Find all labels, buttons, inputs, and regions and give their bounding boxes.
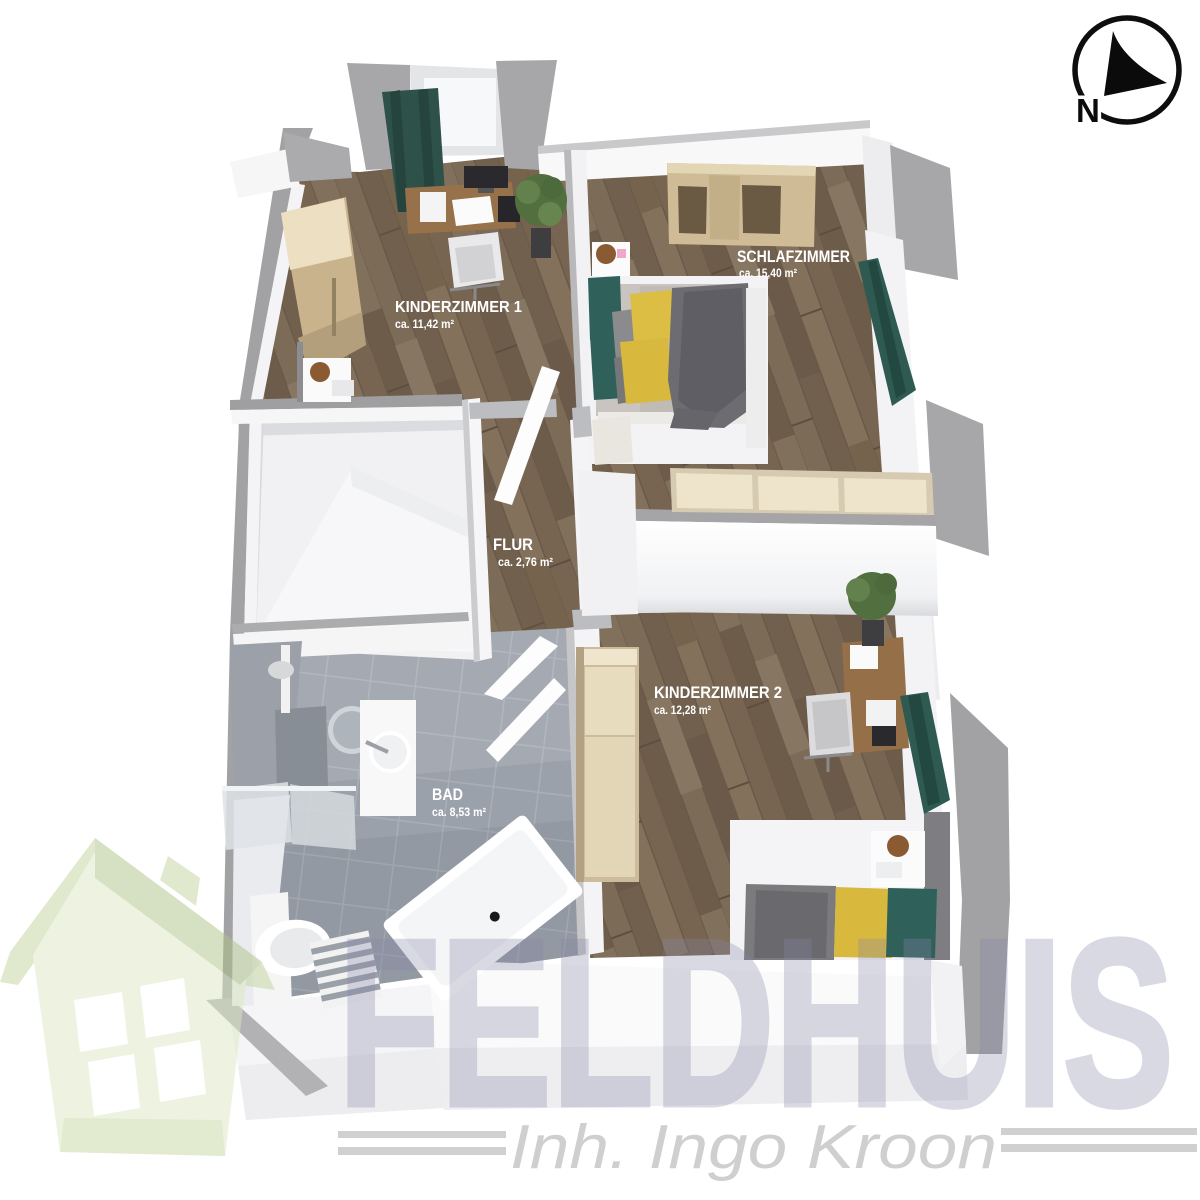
svg-text:ca. 12,28 m²: ca. 12,28 m² xyxy=(654,703,711,717)
svg-text:ca. 2,76 m²: ca. 2,76 m² xyxy=(498,555,553,569)
svg-text:FLUR: FLUR xyxy=(493,535,533,554)
svg-text:KINDERZIMMER 1: KINDERZIMMER 1 xyxy=(395,299,522,316)
svg-text:N: N xyxy=(1076,92,1100,129)
svg-text:BAD: BAD xyxy=(432,785,463,804)
svg-text:Inh. Ingo Kroon: Inh. Ingo Kroon xyxy=(510,1113,997,1182)
svg-text:KINDERZIMMER 2: KINDERZIMMER 2 xyxy=(654,683,782,702)
svg-text:ca. 8,53 m²: ca. 8,53 m² xyxy=(432,805,486,819)
svg-text:ca. 11,42 m²: ca. 11,42 m² xyxy=(395,317,454,331)
svg-text:ca. 15,40 m²: ca. 15,40 m² xyxy=(739,266,797,280)
svg-text:SCHLAFZIMMER: SCHLAFZIMMER xyxy=(737,247,850,266)
